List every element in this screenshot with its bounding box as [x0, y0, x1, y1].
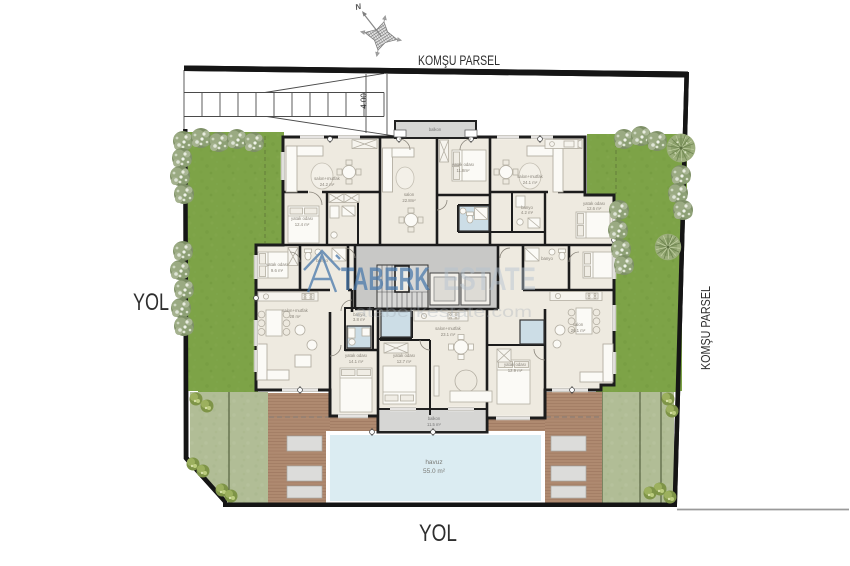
svg-text:12.6 m²: 12.6 m²	[587, 206, 602, 211]
svg-text:9.6 m²: 9.6 m²	[271, 268, 284, 273]
svg-text:yatak odası: yatak odası	[266, 262, 288, 267]
svg-text:havuz: havuz	[425, 459, 442, 466]
svg-text:24.1 m²: 24.1 m²	[523, 180, 538, 185]
svg-text:4.2 m²: 4.2 m²	[521, 210, 534, 215]
svg-text:KOMŞU PARSEL: KOMŞU PARSEL	[698, 286, 713, 370]
svg-text:11.8m²: 11.8m²	[456, 168, 470, 173]
svg-text:salon+mutfak: salon+mutfak	[517, 174, 544, 179]
svg-text:salon+mutfak: salon+mutfak	[282, 308, 309, 313]
svg-text:salon+mutfak: salon+mutfak	[314, 176, 341, 181]
svg-text:12.7 m²: 12.7 m²	[397, 359, 412, 364]
svg-text:TABERK: TABERK	[341, 261, 430, 297]
svg-text:salon+mutfak: salon+mutfak	[435, 326, 462, 331]
svg-text:26.1 m²: 26.1 m²	[571, 328, 586, 333]
svg-text:yatak odası: yatak odası	[291, 216, 313, 221]
svg-text:yatak odası: yatak odası	[452, 162, 474, 167]
svg-text:4.00: 4.00	[360, 93, 369, 109]
svg-text:yatak odası: yatak odası	[345, 353, 367, 358]
svg-text:28 m²: 28 m²	[290, 314, 302, 319]
svg-text:salon: salon	[573, 322, 584, 327]
svg-text:22.8m²: 22.8m²	[402, 198, 416, 203]
svg-text:55.0 m²: 55.0 m²	[423, 468, 446, 475]
svg-text:KOMŞU PARSEL: KOMŞU PARSEL	[418, 53, 500, 68]
svg-text:salon: salon	[404, 192, 415, 197]
svg-text:23.1 m²: 23.1 m²	[441, 332, 456, 337]
svg-text:balkon: balkon	[429, 127, 442, 132]
svg-text:ataberkestate.com: ataberkestate.com	[355, 304, 532, 321]
svg-text:YOL: YOL	[133, 289, 169, 316]
svg-text:yatak odası: yatak odası	[393, 353, 415, 358]
svg-text:14.1 m²: 14.1 m²	[349, 359, 364, 364]
svg-text:11.5 m²: 11.5 m²	[427, 422, 441, 427]
svg-text:YOL: YOL	[419, 520, 457, 547]
svg-text:balkon: balkon	[428, 416, 441, 421]
svg-text:12.9 m²: 12.9 m²	[508, 368, 523, 373]
svg-text:12.4 m²: 12.4 m²	[295, 222, 310, 227]
svg-text:yatak odası: yatak odası	[504, 362, 526, 367]
svg-text:banyo: banyo	[541, 256, 553, 261]
svg-text:ESTATE: ESTATE	[443, 261, 536, 297]
svg-text:24.2 m²: 24.2 m²	[320, 182, 335, 187]
